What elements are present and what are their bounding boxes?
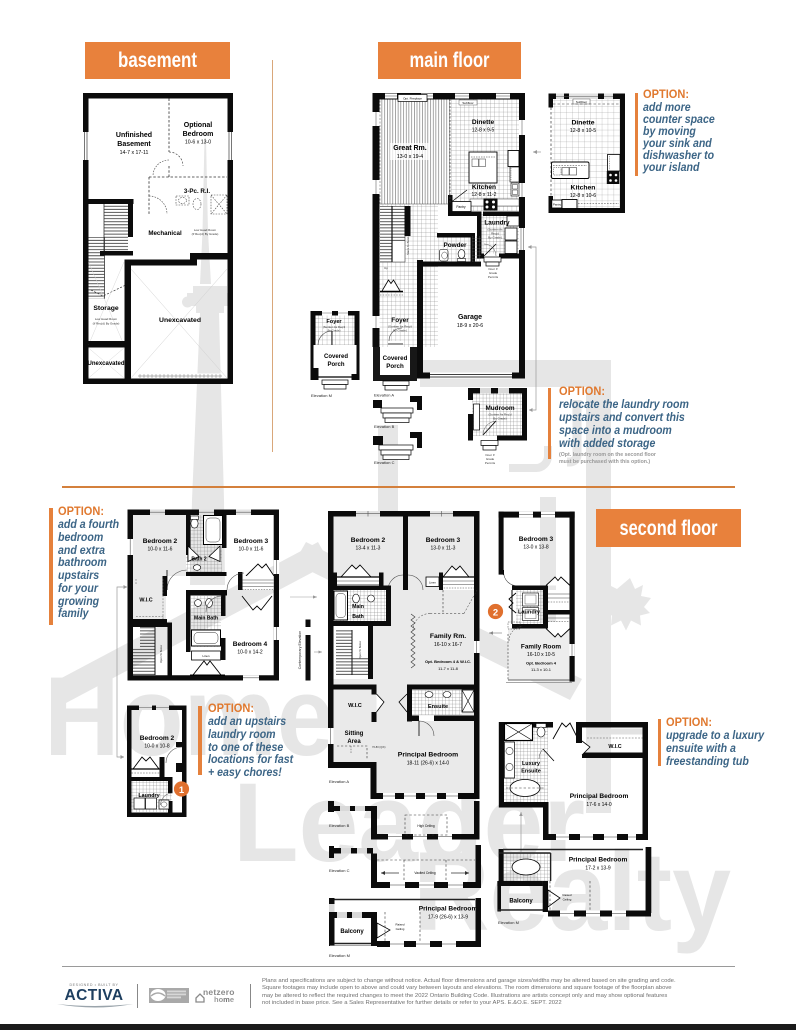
svg-text:Realty: Realty — [413, 829, 731, 954]
svg-text:Bedroom 3: Bedroom 3 — [234, 538, 269, 545]
svg-text:second floor: second floor — [620, 517, 718, 540]
svg-text:1: 1 — [179, 785, 185, 796]
svg-text:17-9 (26-6) x 13-9: 17-9 (26-6) x 13-9 — [428, 915, 468, 921]
svg-text:Sitting: Sitting — [345, 731, 364, 737]
svg-text:Optional: Optional — [184, 122, 212, 129]
svg-text:Covered: Covered — [324, 354, 348, 360]
svg-text:Main Bath: Main Bath — [194, 616, 218, 622]
svg-text:12-8 x 10-5: 12-8 x 10-5 — [570, 128, 596, 134]
svg-text:Elevation B: Elevation B — [329, 823, 350, 828]
svg-text:13-0 x 13-8: 13-0 x 13-8 — [523, 545, 549, 551]
svg-text:Permits: Permits — [485, 461, 496, 465]
svg-text:Mudroom: Mudroom — [485, 405, 514, 412]
svg-text:Bath 2: Bath 2 — [191, 557, 207, 563]
svg-text:Stairs To Bsmt: Stairs To Bsmt — [406, 237, 410, 255]
svg-text:11-3 x 10-1: 11-3 x 10-1 — [531, 667, 552, 672]
svg-text:16-10 x 10-5: 16-10 x 10-5 — [527, 652, 555, 658]
svg-text:Mechanical: Mechanical — [148, 230, 182, 237]
svg-text:Opt. Fireplace: Opt. Fireplace — [403, 97, 422, 101]
svg-text:By Grade): By Grade) — [393, 329, 407, 333]
svg-text:Bedroom 3: Bedroom 3 — [426, 537, 461, 544]
svg-text:18-9 x 20-6: 18-9 x 20-6 — [457, 323, 483, 329]
svg-text:18-11 (26-6) x 14-0: 18-11 (26-6) x 14-0 — [407, 761, 450, 767]
svg-text:Principal Bedroom: Principal Bedroom — [419, 906, 478, 913]
svg-text:76-80 (Q/K): 76-80 (Q/K) — [372, 745, 386, 749]
svg-text:Laundry: Laundry — [518, 610, 541, 616]
svg-text:Elevation B: Elevation B — [374, 424, 395, 429]
svg-text:By Grade): By Grade) — [493, 417, 506, 421]
svg-text:17-6 x 14-0: 17-6 x 14-0 — [586, 802, 612, 808]
svg-text:Open To Below: Open To Below — [159, 645, 163, 663]
svg-text:Ceiling: Ceiling — [396, 927, 405, 931]
svg-text:Elevation A: Elevation A — [329, 779, 349, 784]
svg-text:By Grade): By Grade) — [328, 329, 341, 333]
svg-text:Vaulted Ceiling: Vaulted Ceiling — [414, 871, 435, 875]
svg-text:13-0 x 19-4: 13-0 x 19-4 — [397, 154, 423, 160]
svg-text:Ensuite: Ensuite — [428, 704, 448, 710]
svg-text:Garage: Garage — [458, 314, 482, 321]
svg-text:High Ceiling: High Ceiling — [417, 824, 434, 828]
svg-text:Bath: Bath — [352, 614, 364, 620]
svg-text:12-8 x 9-5: 12-8 x 9-5 — [472, 128, 495, 134]
svg-text:Permits: Permits — [488, 275, 499, 279]
svg-text:W.I.C: W.I.C — [348, 703, 362, 709]
svg-text:Principal Bedroom: Principal Bedroom — [569, 857, 628, 864]
svg-text:10-0 x 11-6: 10-0 x 11-6 — [148, 547, 173, 553]
svg-text:Covered: Covered — [383, 355, 408, 362]
svg-text:Unfinished: Unfinished — [116, 132, 152, 139]
svg-text:Porch: Porch — [386, 363, 404, 370]
svg-text:10-0 x 10-8: 10-0 x 10-8 — [144, 744, 170, 750]
svg-text:13-4 x 11-3: 13-4 x 11-3 — [356, 546, 381, 552]
svg-text:Kitchen: Kitchen — [472, 184, 496, 191]
svg-text:Bedroom 4: Bedroom 4 — [233, 641, 268, 648]
svg-text:Subfloor: Subfloor — [462, 101, 473, 105]
svg-text:Family Room: Family Room — [521, 644, 561, 651]
svg-text:Opt. Bedroom 4 & W.I.C.: Opt. Bedroom 4 & W.I.C. — [425, 659, 471, 664]
svg-text:Dinette: Dinette — [571, 120, 594, 127]
svg-text:11-7 x 11-8: 11-7 x 11-8 — [438, 666, 458, 671]
svg-text:Contemporary Elevation: Contemporary Elevation — [298, 631, 302, 670]
svg-text:Balcony: Balcony — [340, 929, 364, 935]
svg-text:Principal Bedroom: Principal Bedroom — [570, 793, 629, 800]
svg-text:Unexcavated: Unexcavated — [87, 361, 124, 367]
svg-text:Kitchen: Kitchen — [571, 185, 596, 192]
svg-text:16-10 x 16-7: 16-10 x 16-7 — [434, 642, 462, 648]
svg-text:Open To Below: Open To Below — [358, 641, 362, 659]
svg-text:Powder: Powder — [443, 242, 467, 249]
svg-text:Raised: Raised — [396, 923, 405, 927]
svg-text:Up: Up — [384, 266, 388, 270]
svg-text:Balcony: Balcony — [509, 899, 533, 905]
svg-text:Ensuite: Ensuite — [521, 769, 540, 775]
svg-text:Family Rm.: Family Rm. — [430, 633, 466, 640]
svg-text:Opt. Bedroom 4: Opt. Bedroom 4 — [526, 661, 557, 666]
svg-text:Subfloor: Subfloor — [576, 100, 587, 104]
svg-text:Principal Bedroom: Principal Bedroom — [398, 752, 458, 759]
svg-text:Linen: Linen — [202, 654, 209, 658]
svg-text:(If Req'd) By Grade): (If Req'd) By Grade) — [93, 322, 120, 326]
svg-text:17-2 x 13-9: 17-2 x 13-9 — [585, 866, 611, 872]
svg-text:12-8 x 11-2: 12-8 x 11-2 — [472, 192, 497, 198]
svg-text:Elevation C: Elevation C — [329, 868, 350, 873]
svg-text:Low Head Room: Low Head Room — [95, 317, 118, 321]
svg-text:Raised: Raised — [563, 893, 572, 897]
svg-text:10-0 x 14-2: 10-0 x 14-2 — [237, 650, 263, 656]
svg-text:10-0 x 11-6: 10-0 x 11-6 — [239, 547, 264, 553]
svg-text:Dinette: Dinette — [472, 119, 495, 126]
svg-text:Luxury: Luxury — [522, 761, 540, 767]
svg-text:Bedroom 3: Bedroom 3 — [519, 536, 554, 543]
svg-text:Basement: Basement — [117, 141, 151, 148]
svg-text:Unexcavated: Unexcavated — [159, 317, 201, 324]
svg-text:10-6 x 13-0: 10-6 x 13-0 — [185, 140, 211, 146]
svg-text:Elevation C: Elevation C — [374, 460, 395, 465]
svg-text:main floor: main floor — [410, 49, 490, 72]
svg-text:Porch: Porch — [327, 362, 344, 368]
svg-text:W.I.C: W.I.C — [608, 744, 621, 750]
svg-text:2: 2 — [493, 608, 498, 619]
svg-text:Ceiling: Ceiling — [563, 898, 572, 902]
svg-text:(If Req'd) By Grade): (If Req'd) By Grade) — [192, 232, 219, 236]
svg-text:By Grade): By Grade) — [488, 236, 502, 240]
svg-text:14-7 x 17-11: 14-7 x 17-11 — [120, 150, 149, 156]
svg-text:Foyer: Foyer — [391, 317, 409, 324]
svg-text:Elevation M: Elevation M — [311, 393, 332, 398]
svg-text:Laundry: Laundry — [484, 220, 510, 227]
svg-text:Linen: Linen — [429, 581, 436, 585]
svg-text:Bedroom 2: Bedroom 2 — [140, 735, 175, 742]
svg-text:Bedroom: Bedroom — [183, 131, 214, 138]
svg-text:3-Pc. R.I.: 3-Pc. R.I. — [184, 188, 210, 195]
svg-text:12-8 x 10-6: 12-8 x 10-6 — [570, 193, 596, 199]
svg-text:Storage: Storage — [93, 305, 119, 312]
svg-text:basement: basement — [118, 49, 197, 72]
svg-text:Great Rm.: Great Rm. — [393, 145, 427, 152]
svg-text:13-0 x 11-3: 13-0 x 11-3 — [431, 546, 456, 552]
svg-text:Area: Area — [347, 739, 361, 745]
svg-text:Elevation M: Elevation M — [329, 953, 350, 958]
svg-text:Elevation A: Elevation A — [374, 393, 394, 398]
svg-text:Pantry: Pantry — [553, 203, 562, 207]
svg-text:Main: Main — [352, 604, 364, 610]
svg-text:Elevation M: Elevation M — [498, 920, 519, 925]
svg-text:Pantry: Pantry — [456, 205, 466, 209]
svg-text:Bedroom 2: Bedroom 2 — [351, 537, 386, 544]
